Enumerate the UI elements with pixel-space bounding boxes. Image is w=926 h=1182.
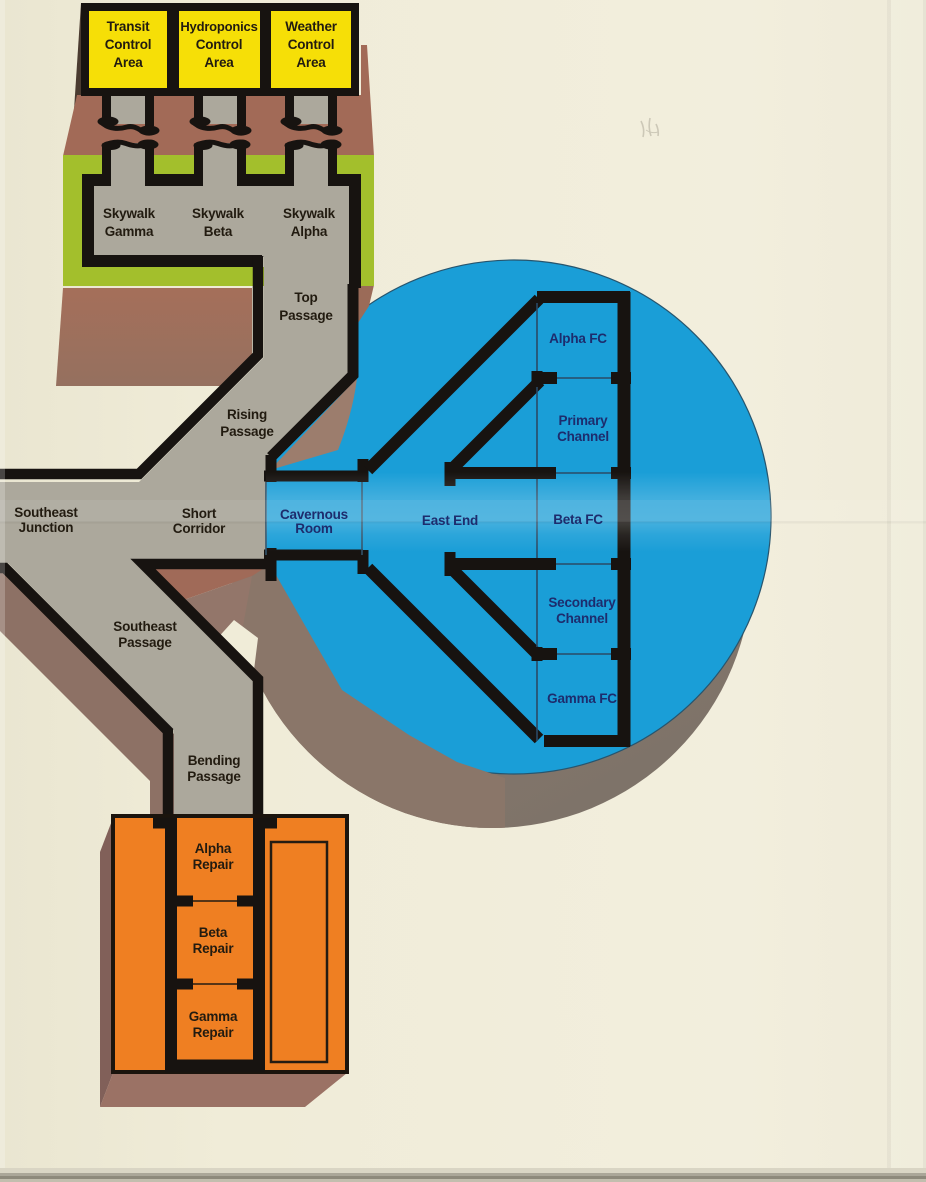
svg-text:Passage: Passage [118, 635, 172, 650]
svg-text:Area: Area [113, 55, 143, 70]
svg-text:Southeast: Southeast [113, 619, 177, 634]
svg-text:Gamma: Gamma [189, 1009, 238, 1024]
svg-text:Gamma FC: Gamma FC [547, 691, 617, 706]
svg-text:Alpha: Alpha [195, 841, 232, 856]
svg-text:Bending: Bending [188, 753, 241, 768]
svg-text:Channel: Channel [557, 429, 609, 444]
svg-text:Passage: Passage [220, 424, 274, 439]
svg-text:Alpha: Alpha [291, 224, 328, 239]
svg-text:Skywalk: Skywalk [283, 206, 336, 221]
svg-text:Area: Area [204, 55, 234, 70]
svg-text:East End: East End [422, 513, 478, 528]
svg-text:Channel: Channel [556, 611, 608, 626]
svg-text:Junction: Junction [19, 520, 74, 535]
svg-text:Short: Short [182, 506, 217, 521]
svg-text:Rising: Rising [227, 407, 267, 422]
svg-text:Repair: Repair [193, 857, 235, 872]
svg-text:Primary: Primary [559, 413, 609, 428]
svg-text:Southeast: Southeast [14, 505, 78, 520]
svg-text:Control: Control [288, 37, 335, 52]
svg-text:Room: Room [295, 521, 333, 536]
svg-text:Beta: Beta [204, 224, 233, 239]
svg-text:Passage: Passage [279, 308, 333, 323]
svg-text:Skywalk: Skywalk [103, 206, 156, 221]
svg-text:Skywalk: Skywalk [192, 206, 245, 221]
svg-text:Control: Control [105, 37, 152, 52]
svg-text:Passage: Passage [187, 769, 241, 784]
svg-text:Transit: Transit [107, 19, 151, 34]
svg-text:Beta: Beta [199, 925, 228, 940]
svg-text:Repair: Repair [193, 941, 235, 956]
svg-text:Alpha FC: Alpha FC [549, 331, 607, 346]
svg-text:Corridor: Corridor [173, 521, 226, 536]
svg-text:Secondary: Secondary [548, 595, 616, 610]
svg-text:Repair: Repair [193, 1025, 235, 1040]
svg-text:Hydroponics: Hydroponics [180, 19, 257, 34]
svg-text:Cavernous: Cavernous [280, 507, 348, 522]
svg-text:Area: Area [296, 55, 326, 70]
svg-text:Weather: Weather [285, 19, 338, 34]
svg-text:Gamma: Gamma [105, 224, 154, 239]
svg-text:Beta FC: Beta FC [553, 512, 603, 527]
svg-text:Control: Control [196, 37, 243, 52]
svg-text:Top: Top [294, 290, 317, 305]
